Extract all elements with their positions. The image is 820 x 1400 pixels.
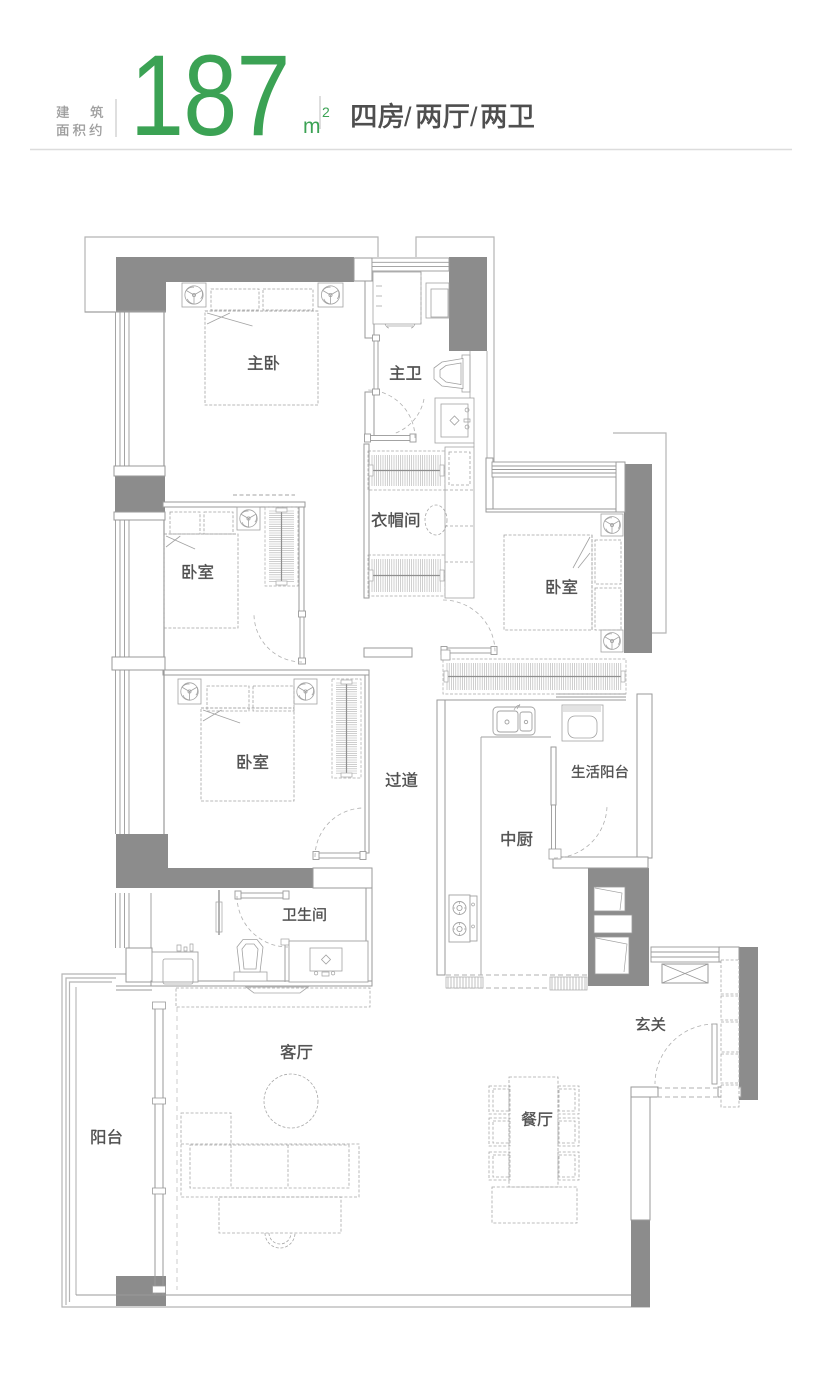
svg-text:2: 2	[322, 104, 330, 120]
svg-text:/: /	[470, 102, 478, 132]
svg-text:187: 187	[130, 31, 290, 160]
svg-text:/: /	[404, 102, 412, 132]
svg-text:m: m	[303, 115, 321, 138]
